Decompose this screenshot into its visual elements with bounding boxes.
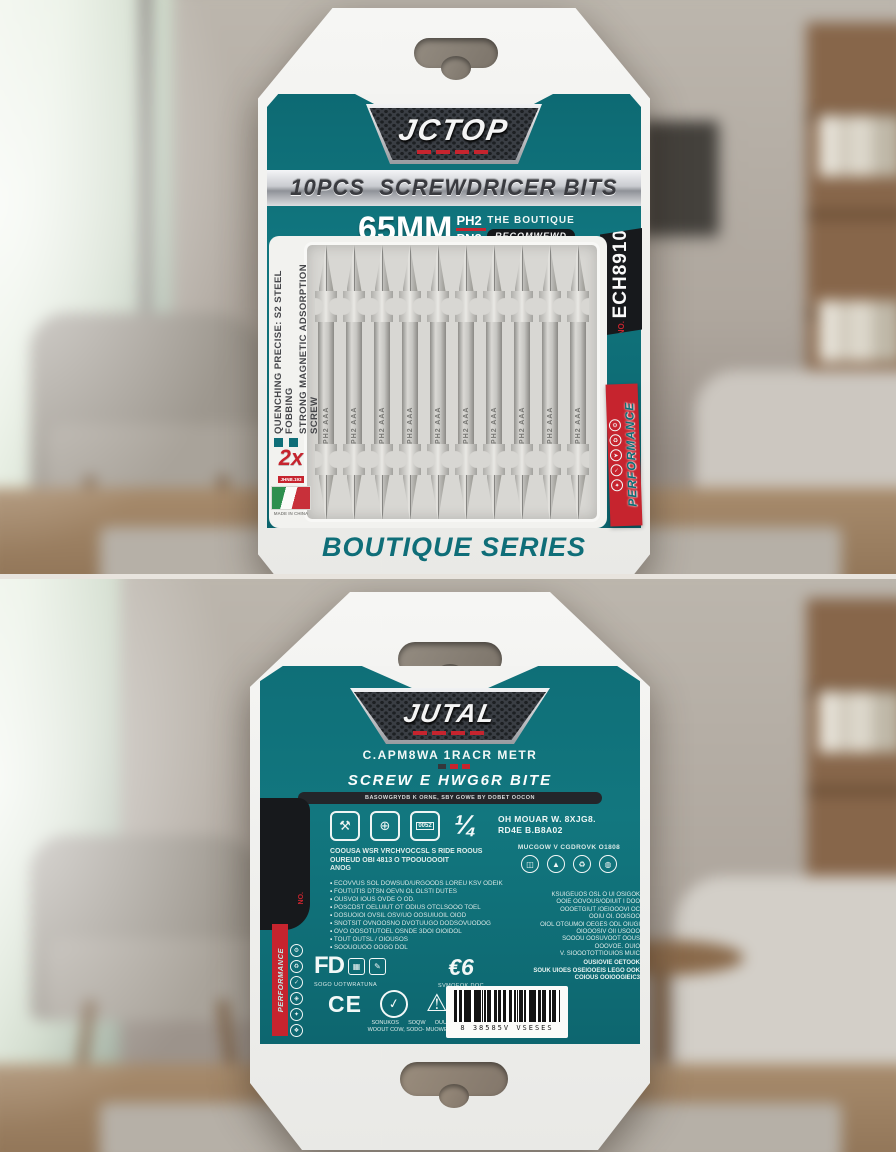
brand-logo: JUTAL: [401, 698, 498, 729]
photo-back: JUTAL C.APM8WA 1RACR METR SCREW E HWG6R …: [0, 576, 896, 1152]
origin-flag: MADE IN CHINA: [271, 486, 311, 516]
bit-waist: [511, 291, 533, 322]
phillips-tip: [459, 475, 474, 521]
feature-icon: ✦: [611, 479, 623, 491]
feature-1: QUENCHING PRECISE: S2 STEEL FOBBING: [273, 246, 295, 434]
phillips-tip: [571, 475, 586, 521]
ceg-mark: €6: [426, 954, 496, 981]
bit-waist: [483, 444, 505, 475]
description-paragraph: COOUSA WSR VRCHVOCCSL S RIDE ROOUSOUREUD…: [330, 848, 495, 874]
series-label: BOUTIQUE SERIES: [258, 532, 650, 563]
bit-waist: [371, 291, 393, 322]
phillips-tip: [319, 245, 334, 291]
bit-marking: PH2 AAA: [491, 336, 498, 444]
screwdriver-bit: PH2 AAA: [399, 245, 421, 521]
phillips-tip: [375, 475, 390, 521]
bit-shaft: PH2 AAA: [430, 322, 446, 444]
cert-ce-row: CE ✓ ⚠: [328, 990, 447, 1018]
material-icon: ◍: [599, 855, 617, 873]
cert-box-icon: ▦: [348, 958, 365, 975]
bit-waist: [567, 444, 589, 475]
phillips-tip: [543, 245, 558, 291]
hang-slot: [414, 38, 498, 68]
phillips-tip: [347, 475, 362, 521]
performance-label: PERFORMANCE: [276, 948, 285, 1012]
books: [819, 300, 896, 362]
bit-shaft: PH2 AAA: [402, 322, 418, 444]
bit-waist: [511, 444, 533, 475]
phillips-tip: [319, 475, 334, 521]
bit-marking: PH2 AAA: [323, 336, 330, 444]
bit-waist: [567, 291, 589, 322]
cert-pencil-icon: ✎: [369, 958, 386, 975]
bit-shaft: PH2 AAA: [570, 322, 586, 444]
material-icon: ▲: [547, 855, 565, 873]
bit-shaft: PH2 AAA: [374, 322, 390, 444]
feature-icon-row: ⚒ ⊕ 0052 ¼: [330, 810, 477, 841]
materials-block: MUCGOW V CGDROVK O1808 ◫▲♻◍: [498, 844, 640, 873]
logo-red-dashes: [413, 731, 487, 735]
bit-hand-icon: ⚒: [330, 811, 360, 841]
barcode-digits: 8 38585V VSESES: [460, 1024, 553, 1032]
bit-marking: PH2 AAA: [519, 336, 526, 444]
feature-icon: ✓: [610, 464, 622, 476]
phillips-tip: [487, 475, 502, 521]
material-icon: ◫: [521, 855, 539, 873]
spec-text: OH MOUAR W. 8XJG8. RD4E B.B8A02: [498, 814, 640, 836]
barcode-bars: [454, 990, 560, 1022]
feature-icon: ❖: [290, 1024, 303, 1037]
books: [819, 115, 896, 177]
bit-marking: PH2 AAA: [407, 336, 414, 444]
bit-waist: [315, 444, 337, 475]
bit-shaft: PH2 AAA: [514, 322, 530, 444]
performance-bar: ⚙♻➤✓✦ PERFORMANCE: [606, 383, 643, 526]
brand-logo: JCTOP: [396, 114, 511, 148]
screwdriver-bit: PH2 AAA: [427, 245, 449, 521]
feature-icon: ◈: [290, 992, 303, 1005]
phillips-tip: [487, 245, 502, 291]
phillips-tip: [403, 245, 418, 291]
logo-red-dashes: [417, 150, 491, 154]
product-banner: 10PCS SCREWDRICER BITS: [267, 170, 641, 206]
art-frame: [642, 121, 718, 234]
feature-2: STRONG MAGNETIC ADSORPTION SCREW: [298, 246, 320, 434]
model-number: ECH8910: [610, 229, 632, 318]
screwdriver-bit: PH2 AAA: [511, 245, 533, 521]
feature-icon: ✓: [290, 976, 303, 989]
screwdriver-bit: PH2 AAA: [567, 245, 589, 521]
warning-triangle-icon: ⚠: [426, 992, 448, 1016]
bit-shaft: PH2 AAA: [346, 322, 362, 444]
bit-shaft: PH2 AAA: [318, 322, 334, 444]
bit-marking: PH2 AAA: [547, 336, 554, 444]
ruler-icon: 0052: [410, 811, 440, 841]
screwdriver-bit: PH2 AAA: [343, 245, 365, 521]
screwdriver-bit: PH2 AAA: [483, 245, 505, 521]
bit-shaft: PH2 AAA: [486, 322, 502, 444]
bit-marking: PH2 AAA: [575, 336, 582, 444]
screwdriver-bit: PH2 AAA: [455, 245, 477, 521]
performance-label: PERFORMANCE: [622, 402, 640, 507]
side-icon-column: ⚙♻✓◈✦❖: [290, 944, 303, 1037]
fd-caption: SOGO UOTWRATUNA: [314, 982, 434, 988]
package-back: JUTAL C.APM8WA 1RACR METR SCREW E HWG6R …: [250, 592, 650, 1150]
phillips-tip: [431, 475, 446, 521]
performance-icons: ⚙♻➤✓✦: [609, 419, 624, 491]
screwdriver-bit: PH2 AAA: [539, 245, 561, 521]
quarter-inch-icon: ¼: [454, 810, 477, 841]
table-leg: [654, 969, 666, 1062]
legal-paragraph: KSUIGEUOS OSL O UI OSIGOKOOIE OOVOUS/ODI…: [463, 892, 640, 959]
feature-icon: ♻: [290, 960, 303, 973]
package-front: JCTOP 10PCS SCREWDRICER BITS 65MM PH2 PN…: [258, 8, 650, 574]
books: [819, 691, 896, 753]
materials-icons: ◫▲♻◍: [498, 855, 640, 873]
window-light: [0, 0, 275, 576]
ruler-label: 0052: [416, 822, 433, 830]
origin-caption: MADE IN CHINA: [271, 511, 311, 516]
bit-waist: [371, 444, 393, 475]
flag-icon: [271, 486, 311, 510]
hang-slot-bottom: [400, 1062, 508, 1096]
bit-waist: [343, 444, 365, 475]
window-light: [0, 576, 275, 1152]
phillips-tip: [515, 245, 530, 291]
bit-waist: [539, 291, 561, 322]
bit-waist: [539, 444, 561, 475]
check-circle-icon: ✓: [378, 988, 410, 1020]
feature-icon: ⚙: [290, 944, 303, 957]
bit-waist: [399, 444, 421, 475]
phillips-tip: [403, 475, 418, 521]
bit-marking: PH2 AAA: [435, 336, 442, 444]
corner-panel: NO.: [260, 798, 310, 930]
ce-mark: CE: [328, 991, 362, 1018]
back-subtitle: C.APM8WA 1RACR METR: [250, 748, 650, 762]
phillips-tip: [571, 245, 586, 291]
cert-fd-block: FD ▦ ✎ SOGO UOTWRATUNA: [314, 952, 434, 988]
phillips-tip: [515, 475, 530, 521]
feature-claims: QUENCHING PRECISE: S2 STEEL FOBBING STRO…: [273, 246, 320, 434]
promo-2x: 2x JHNB.193: [271, 448, 311, 486]
bit-marking: PH2 AAA: [463, 336, 470, 444]
screwdriver-bit: PH2 AAA: [371, 245, 393, 521]
phillips-tip: [543, 475, 558, 521]
bit-marking: PH2 AAA: [379, 336, 386, 444]
flag-ticks: [438, 764, 470, 769]
feature-icon: ✦: [290, 1008, 303, 1021]
performance-stripe: PERFORMANCE: [272, 924, 288, 1036]
bit-waist: [427, 444, 449, 475]
back-heading-sub: BASOWGRYDB K ORNE, SBY GOWE BY DOBET OOC…: [298, 792, 602, 804]
blister-window: PH2 AAA PH2 AAA: [304, 242, 600, 522]
material-icon: ♻: [573, 855, 591, 873]
cert-ceg-block: €6 SVMOEOK DOC: [426, 954, 496, 989]
product-photo-canvas: JCTOP 10PCS SCREWDRICER BITS 65MM PH2 PN…: [0, 0, 896, 1152]
back-heading: SCREW E HWG6R BITE: [250, 772, 650, 789]
globe-gear-icon: ⊕: [370, 811, 400, 841]
photo-divider: [0, 574, 896, 579]
phillips-tip: [347, 245, 362, 291]
bit-waist: [427, 291, 449, 322]
feature-icon: ➤: [610, 449, 622, 461]
feature-icon: ⚙: [609, 419, 621, 431]
fd-mark: FD: [314, 952, 344, 980]
bit-waist: [343, 291, 365, 322]
barcode: 8 38585V VSESES: [446, 986, 568, 1038]
panel-no-label: NO.: [298, 892, 305, 904]
bit-marking: PH2 AAA: [351, 336, 358, 444]
bit-waist: [399, 291, 421, 322]
phillips-tip: [431, 245, 446, 291]
bit-waist: [483, 291, 505, 322]
phillips-tip: [375, 245, 390, 291]
bullet-item: ECOVVUS SOL DOWSUD/URGOODS LOREU KSV ODE…: [330, 880, 515, 888]
photo-front: JCTOP 10PCS SCREWDRICER BITS 65MM PH2 PN…: [0, 0, 896, 576]
phillips-tip: [459, 245, 474, 291]
bit-shaft: PH2 AAA: [458, 322, 474, 444]
bit-shaft: PH2 AAA: [542, 322, 558, 444]
bit-waist: [455, 291, 477, 322]
bit-waist: [455, 444, 477, 475]
feature-icon: ♻: [609, 434, 621, 446]
